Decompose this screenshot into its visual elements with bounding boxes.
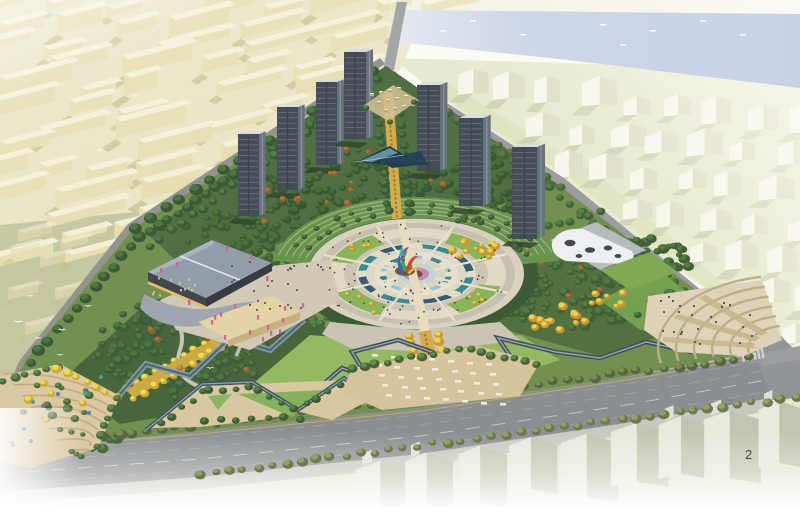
svg-text:2: 2 bbox=[745, 447, 752, 462]
